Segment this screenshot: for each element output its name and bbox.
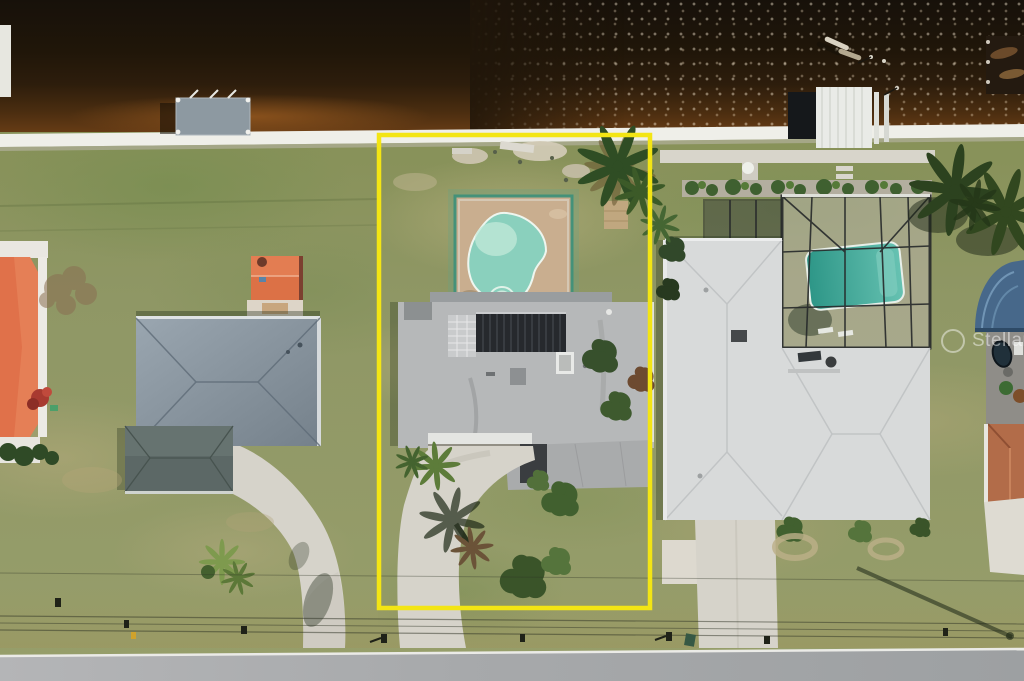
fire-hydrant [131,632,136,639]
far-right-dock [986,36,1024,94]
left-house [117,311,321,494]
roof-hatch [510,368,526,385]
far-left-dock-edge [0,25,11,97]
skylight-grid [448,315,476,357]
paver-pad [604,201,628,229]
porch-fascia [428,433,532,444]
roadside-verge [0,588,1024,648]
stellar-mls-logo-icon [941,329,965,353]
pool-deck [452,193,575,309]
dry-tree [39,266,97,315]
orange-roof-house [0,241,48,463]
aerial-photo-scene: Stellar MLS [0,0,1024,681]
far-right-driveway [984,498,1024,575]
watermark-text: Stellar MLS [972,330,1024,352]
kayaks [816,36,899,95]
street-edge-line [0,649,1024,656]
mls-watermark: Stellar MLS [941,329,1024,353]
solar-panel-array [476,312,566,352]
far-right-house [975,260,1024,575]
shore-rocks [393,141,590,191]
wood-dock [160,90,250,135]
green-bin [684,633,696,647]
dirt-patch [226,512,274,532]
ac-unit [556,352,574,374]
rectangular-pool [805,241,905,310]
garage-wing [125,426,233,494]
scene-vector-layer [0,0,1024,681]
tile-roof-wing [988,424,1024,502]
dirt-patch [62,467,122,493]
roof-skylight [731,330,747,342]
mow-lines [0,199,378,231]
satellite-dish [742,162,754,174]
orange-shed [247,256,303,317]
